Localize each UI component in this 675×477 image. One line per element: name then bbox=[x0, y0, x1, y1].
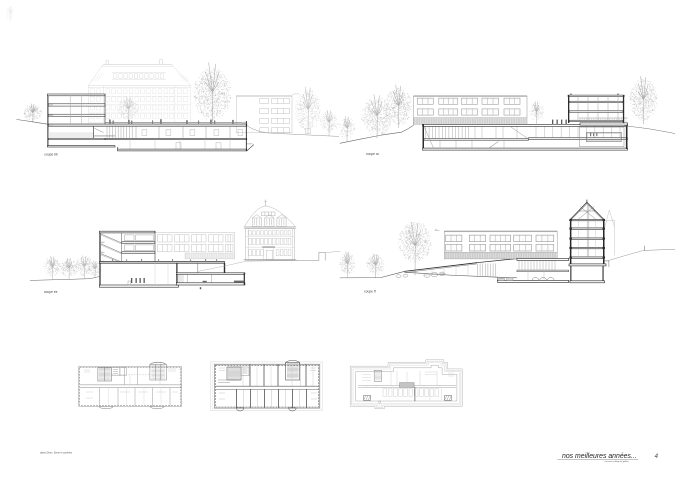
svg-text:nos meilleures années...: nos meilleures années... bbox=[562, 453, 637, 460]
svg-text:plans 2ème, 3ème et combles: plans 2ème, 3ème et combles bbox=[40, 452, 73, 455]
svg-text:coupe ee: coupe ee bbox=[44, 290, 58, 294]
svg-text:coupe bb: coupe bb bbox=[44, 152, 58, 156]
svg-text:concours collège de gollion: concours collège de gollion bbox=[605, 461, 629, 463]
svg-text:coupe ff: coupe ff bbox=[364, 289, 376, 293]
svg-text:coupe cc: coupe cc bbox=[366, 152, 380, 156]
